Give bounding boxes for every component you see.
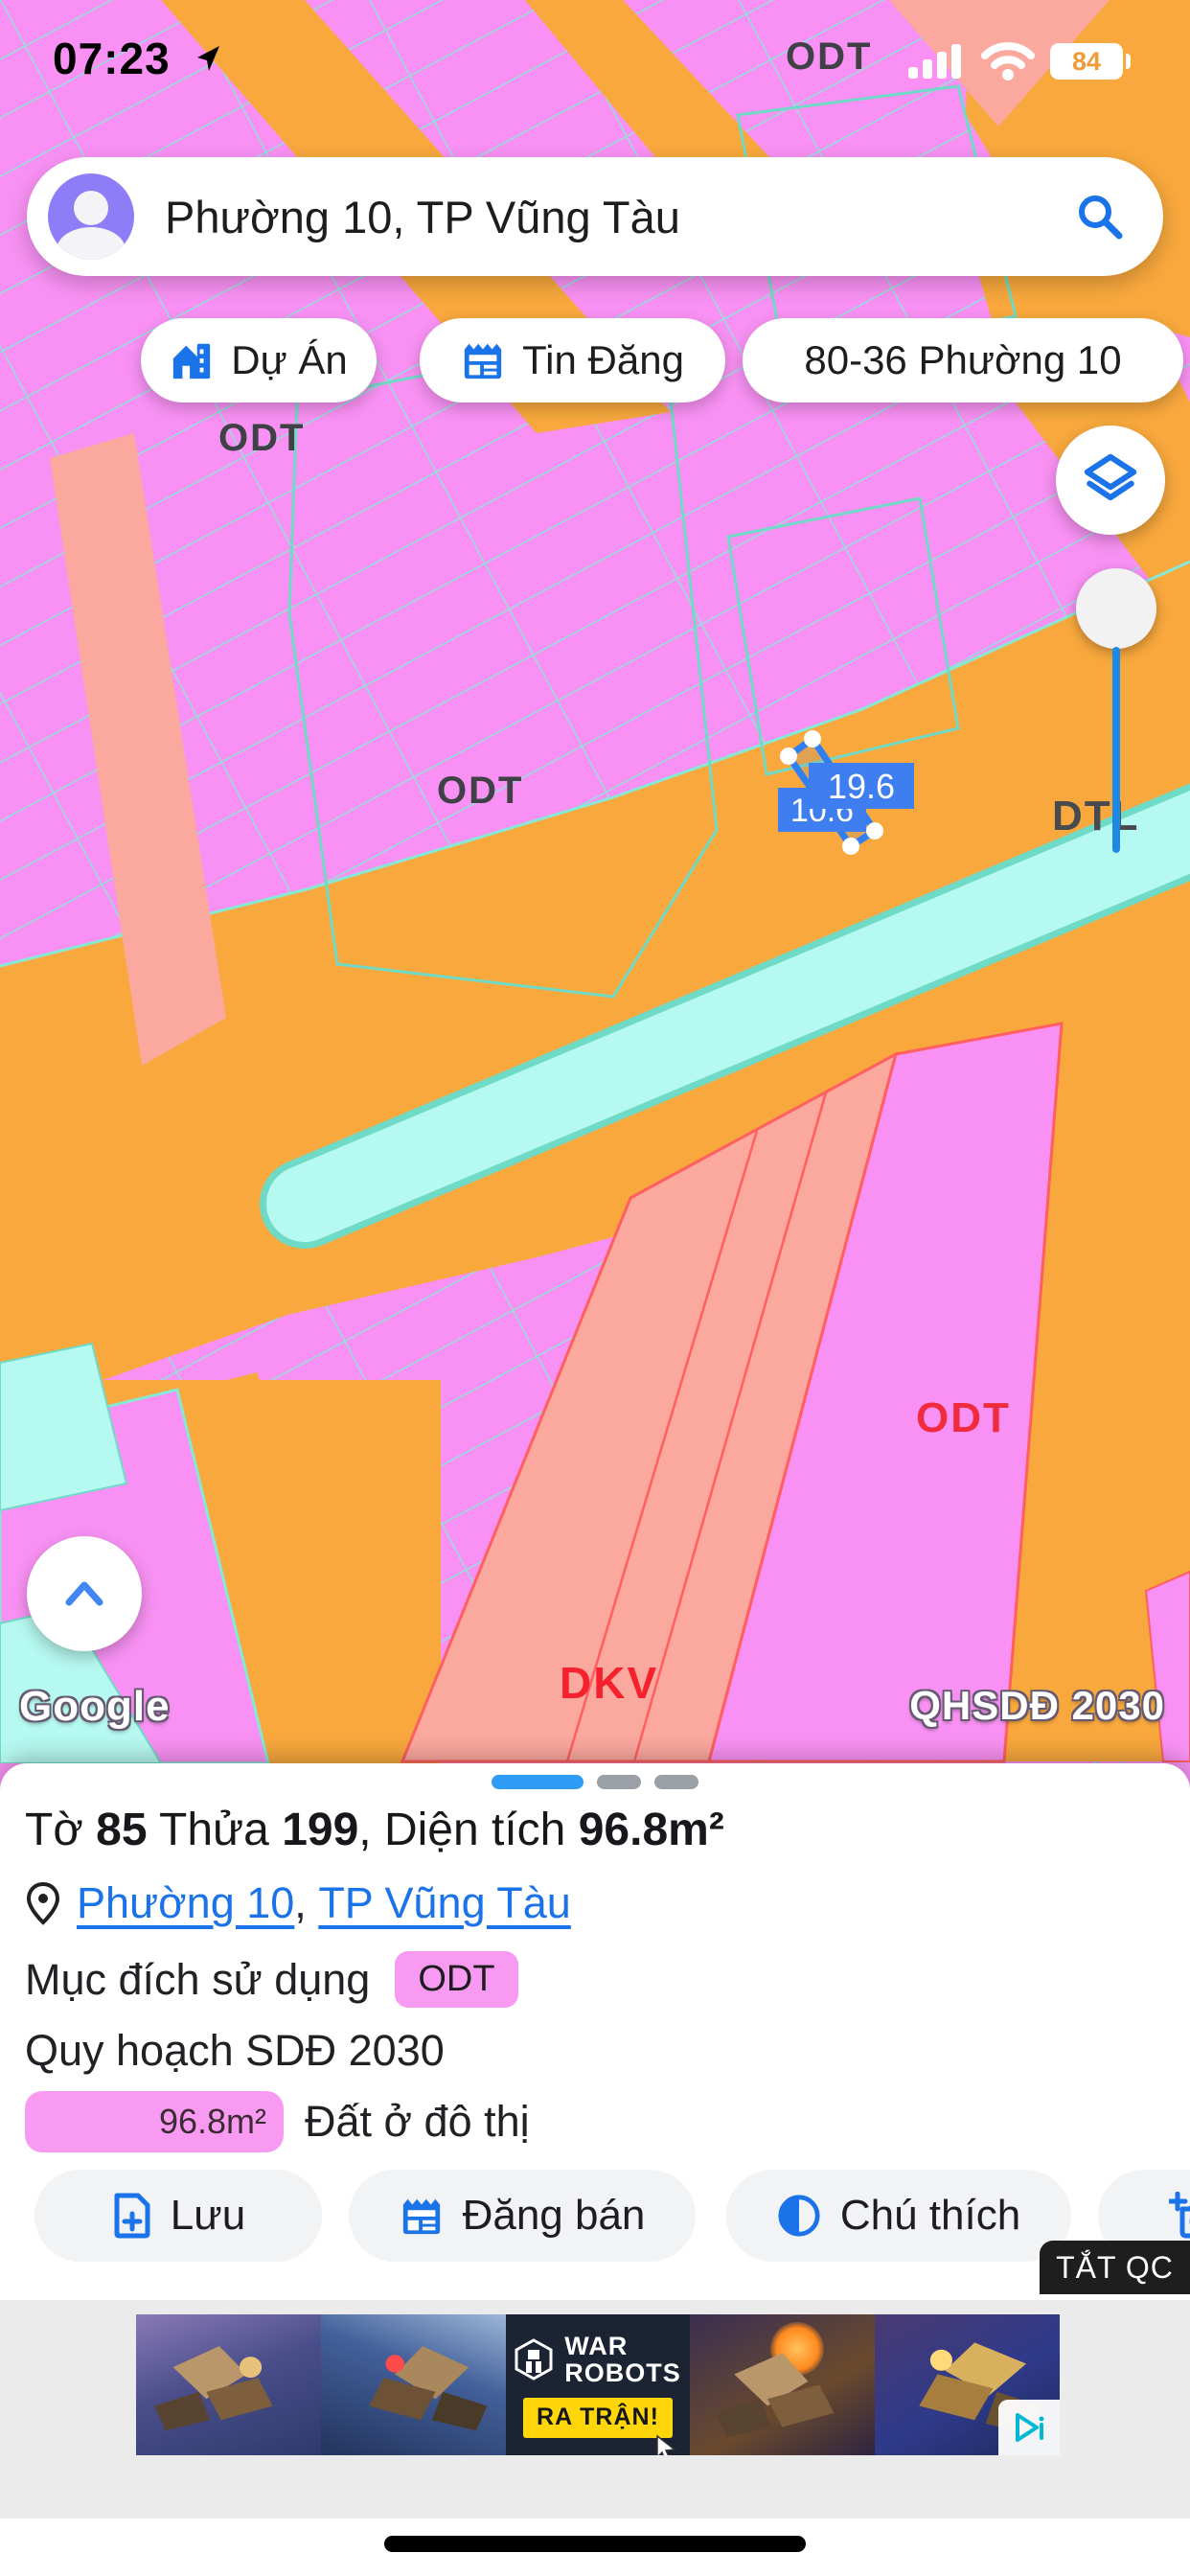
purpose-label: Mục đích sử dụng [25, 1955, 370, 2005]
ad-art-panel [136, 2314, 321, 2455]
listing-icon [461, 338, 505, 382]
robot-art [321, 2314, 506, 2455]
parcel-vertex-handle[interactable] [842, 838, 859, 855]
location-separator: , [294, 1878, 318, 1928]
save-button[interactable]: Lưu [34, 2170, 322, 2262]
purpose-row: Mục đích sử dụng ODT [25, 1951, 518, 2008]
adchoices-badge[interactable] [998, 2400, 1060, 2455]
zone-label-odt-red: ODT [916, 1394, 1011, 1441]
page-dot-active[interactable] [492, 1775, 584, 1789]
chip-label: 80-36 Phường 10 [804, 337, 1121, 383]
chip-parcel-80-36[interactable]: 80-36 Phường 10 [743, 318, 1183, 402]
contrast-icon [777, 2194, 821, 2238]
parcel-vertex-handle[interactable] [804, 730, 821, 747]
zone-area: 96.8m² [159, 2102, 266, 2142]
status-icons: 84 [906, 42, 1123, 80]
robot-art [690, 2314, 875, 2455]
chip-label: Dự Án [231, 337, 348, 383]
purpose-badge: ODT [395, 1951, 517, 2008]
avatar[interactable] [48, 173, 134, 260]
search-input[interactable]: Phường 10, TP Vũng Tàu [165, 191, 1075, 243]
search-icon[interactable] [1075, 192, 1125, 241]
robot-art [136, 2314, 321, 2455]
clock: 07:23 [53, 33, 171, 84]
adchoices-icon [1010, 2409, 1048, 2446]
chip-du-an[interactable]: Dự Án [141, 318, 377, 402]
zone-color-swatch: 96.8m² [25, 2091, 284, 2152]
sheet-pagination [0, 1775, 1190, 1789]
zone-label-odt-center: ODT [437, 770, 523, 812]
save-label: Lưu [171, 2192, 245, 2240]
listing-icon [400, 2194, 444, 2238]
ad-zone: WAR ROBOTS RA TRẬN! [0, 2300, 1190, 2518]
legend-btn-label: Chú thích [840, 2192, 1020, 2240]
legend-row: 96.8m² Đất ở đô thị [25, 2091, 530, 2152]
ward-link[interactable]: Phường 10 [77, 1878, 294, 1928]
home-indicator[interactable] [384, 2536, 806, 2552]
plan-label: Quy hoạch SDĐ 2030 [25, 2026, 445, 2076]
ad-art-panel [690, 2314, 875, 2455]
page-dot[interactable] [597, 1775, 641, 1789]
search-bar[interactable]: Phường 10, TP Vũng Tàu [27, 157, 1163, 276]
ad-banner[interactable]: WAR ROBOTS RA TRẬN! [136, 2314, 1060, 2455]
zone-name: Đất ở đô thị [305, 2097, 530, 2147]
post-label: Đăng bán [463, 2192, 646, 2240]
battery-icon: 84 [1050, 43, 1123, 80]
collapse-sheet-button[interactable] [27, 1536, 142, 1651]
parcel-vertex-handle[interactable] [866, 822, 883, 839]
chevron-up-icon [59, 1577, 109, 1610]
plan-watermark: QHSDĐ 2030 [909, 1683, 1165, 1729]
screen: { "status_bar": { "time": "07:23", "batt… [0, 0, 1190, 2576]
zone-label-dtl: DTL [1052, 793, 1140, 839]
ad-art-panel [321, 2314, 506, 2455]
project-icon [170, 338, 214, 382]
layers-button[interactable] [1056, 425, 1165, 535]
chip-tin-dang[interactable]: Tin Đăng [420, 318, 725, 402]
dimension-value-front: 19.6 [828, 767, 895, 806]
zoom-slider-track[interactable] [1112, 647, 1120, 853]
layers-icon [1083, 452, 1138, 508]
war-robots-emblem [515, 2338, 553, 2380]
location-row: Phường 10 , TP Vũng Tàu [25, 1878, 571, 1928]
parcel-vertex-handle[interactable] [780, 747, 797, 765]
save-doc-icon [111, 2192, 151, 2240]
cursor-icon [653, 2434, 678, 2456]
city-link[interactable]: TP Vũng Tàu [318, 1878, 571, 1928]
legend-button[interactable]: Chú thích [726, 2170, 1071, 2262]
signal-icon [906, 42, 966, 80]
zone-label-dkv: DKV [560, 1658, 658, 1708]
page-dot[interactable] [654, 1775, 698, 1789]
ad-cta-button[interactable]: RA TRẬN! [523, 2398, 673, 2438]
zone-label-odt-left: ODT [218, 417, 305, 459]
parcel-title: Tờ 85 Thửa 199, Diện tích 96.8m² [25, 1804, 724, 1856]
location-arrow-icon [188, 40, 226, 79]
ad-title-panel: WAR ROBOTS RA TRẬN! [506, 2314, 691, 2455]
zone-label-odt-top: ODT [786, 35, 872, 78]
dismiss-ad-button[interactable]: TẮT QC [1040, 2241, 1190, 2294]
ad-title: WAR ROBOTS [564, 2333, 681, 2386]
google-watermark: Google [19, 1683, 171, 1731]
pin-icon [25, 1880, 61, 1926]
zoom-slider-knob[interactable] [1076, 568, 1156, 649]
wifi-icon [981, 42, 1035, 80]
camera-plus-icon [1169, 2192, 1190, 2240]
chip-label: Tin Đăng [522, 337, 684, 383]
parcel-info-sheet[interactable]: Tờ 85 Thửa 199, Diện tích 96.8m² Phường … [0, 1763, 1190, 2300]
post-listing-button[interactable]: Đăng bán [349, 2170, 696, 2262]
